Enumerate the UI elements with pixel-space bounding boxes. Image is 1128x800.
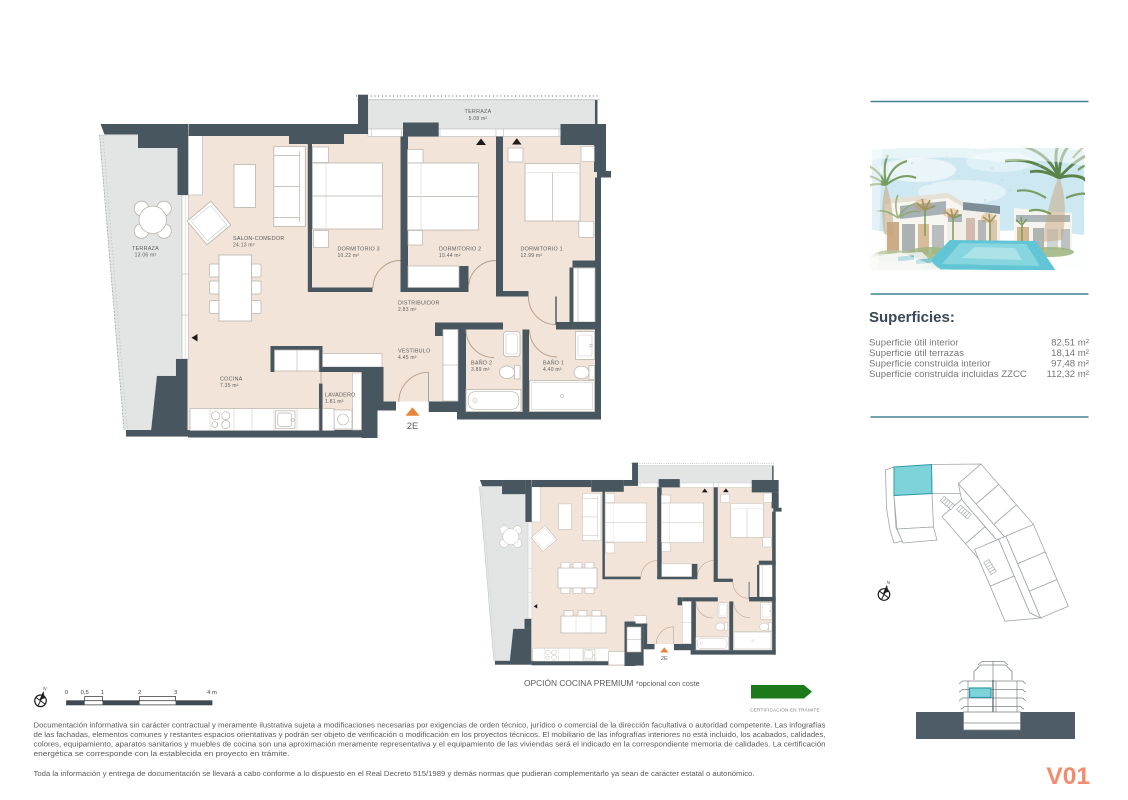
svg-text:Toda la información y entrega: Toda la información y entrega de documen… (34, 769, 755, 778)
svg-text:N: N (43, 686, 47, 692)
svg-text:Superficie útil terrazas: Superficie útil terrazas (869, 348, 964, 359)
svg-text:DORMITORIO 1: DORMITORIO 1 (521, 247, 563, 253)
svg-text:3: 3 (174, 690, 177, 696)
svg-text:0: 0 (65, 690, 68, 696)
svg-text:1: 1 (101, 690, 104, 696)
svg-text:3.89 m²: 3.89 m² (471, 367, 490, 373)
svg-text:Superficies:: Superficies: (869, 309, 955, 326)
svg-text:10.44 m²: 10.44 m² (439, 253, 461, 259)
svg-text:4.40 m²: 4.40 m² (543, 367, 562, 373)
svg-text:CERTIFICACIÓN EN TRÁMITE: CERTIFICACIÓN EN TRÁMITE (750, 707, 819, 713)
svg-text:5.08 m²: 5.08 m² (469, 116, 488, 122)
svg-text:SALON-COMEDOR: SALON-COMEDOR (233, 236, 284, 242)
svg-text:18,14 m²: 18,14 m² (1051, 348, 1090, 359)
svg-text:12.99 m²: 12.99 m² (521, 253, 543, 259)
svg-text:VESTIBULO: VESTIBULO (398, 349, 431, 355)
svg-text:Documentación informativa sin: Documentación informativa sin carácter c… (34, 720, 826, 729)
svg-text:4.45 m²: 4.45 m² (398, 355, 417, 361)
svg-text:COCINA: COCINA (220, 377, 243, 383)
svg-text:DORMITORIO 2: DORMITORIO 2 (439, 247, 481, 253)
svg-text:0,5: 0,5 (81, 690, 89, 696)
svg-text:de las fachadas, elementos com: de las fachadas, elementos comunes y res… (34, 730, 826, 739)
svg-text:BAÑO 2: BAÑO 2 (471, 360, 492, 367)
svg-text:colores, equipamiento, aparato: colores, equipamiento, aparatos sanitari… (34, 740, 826, 749)
svg-text:TERRAZA: TERRAZA (132, 246, 159, 252)
svg-text:112,32 m²: 112,32 m² (1047, 369, 1090, 380)
svg-text:4 m: 4 m (207, 690, 217, 696)
svg-text:TERRAZA: TERRAZA (465, 109, 492, 115)
svg-text:Superficie útil interior: Superficie útil interior (869, 338, 959, 349)
svg-text:N: N (886, 580, 890, 586)
svg-text:13.06 m²: 13.06 m² (135, 253, 157, 259)
svg-text:LAVADERO: LAVADERO (325, 393, 356, 399)
svg-text:2: 2 (138, 690, 141, 696)
svg-text:OPCIÓN COCINA PREMIUM *opciona: OPCIÓN COCINA PREMIUM *opcional con cost… (524, 678, 700, 688)
svg-text:DISTRIBUIDOR: DISTRIBUIDOR (398, 301, 440, 307)
svg-text:7.35 m²: 7.35 m² (220, 383, 239, 389)
svg-text:10.22 m²: 10.22 m² (338, 253, 360, 259)
svg-text:2.83 m²: 2.83 m² (398, 307, 417, 313)
svg-text:energética se corresponde con: energética se corresponde con la estable… (34, 749, 290, 758)
svg-text:24.13 m²: 24.13 m² (233, 243, 255, 249)
svg-text:DORMITORIO 3: DORMITORIO 3 (338, 247, 380, 253)
svg-text:BAÑO 1: BAÑO 1 (543, 360, 564, 367)
svg-text:V01: V01 (1046, 763, 1090, 790)
svg-text:97,48 m²: 97,48 m² (1051, 359, 1090, 370)
svg-text:Superficie construida incluida: Superficie construida incluidas ZZCC (869, 369, 1027, 380)
svg-text:82,51 m²: 82,51 m² (1051, 338, 1090, 349)
svg-text:1.81 m²: 1.81 m² (325, 399, 344, 405)
svg-text:Superficie construida interior: Superficie construida interior (869, 359, 991, 370)
